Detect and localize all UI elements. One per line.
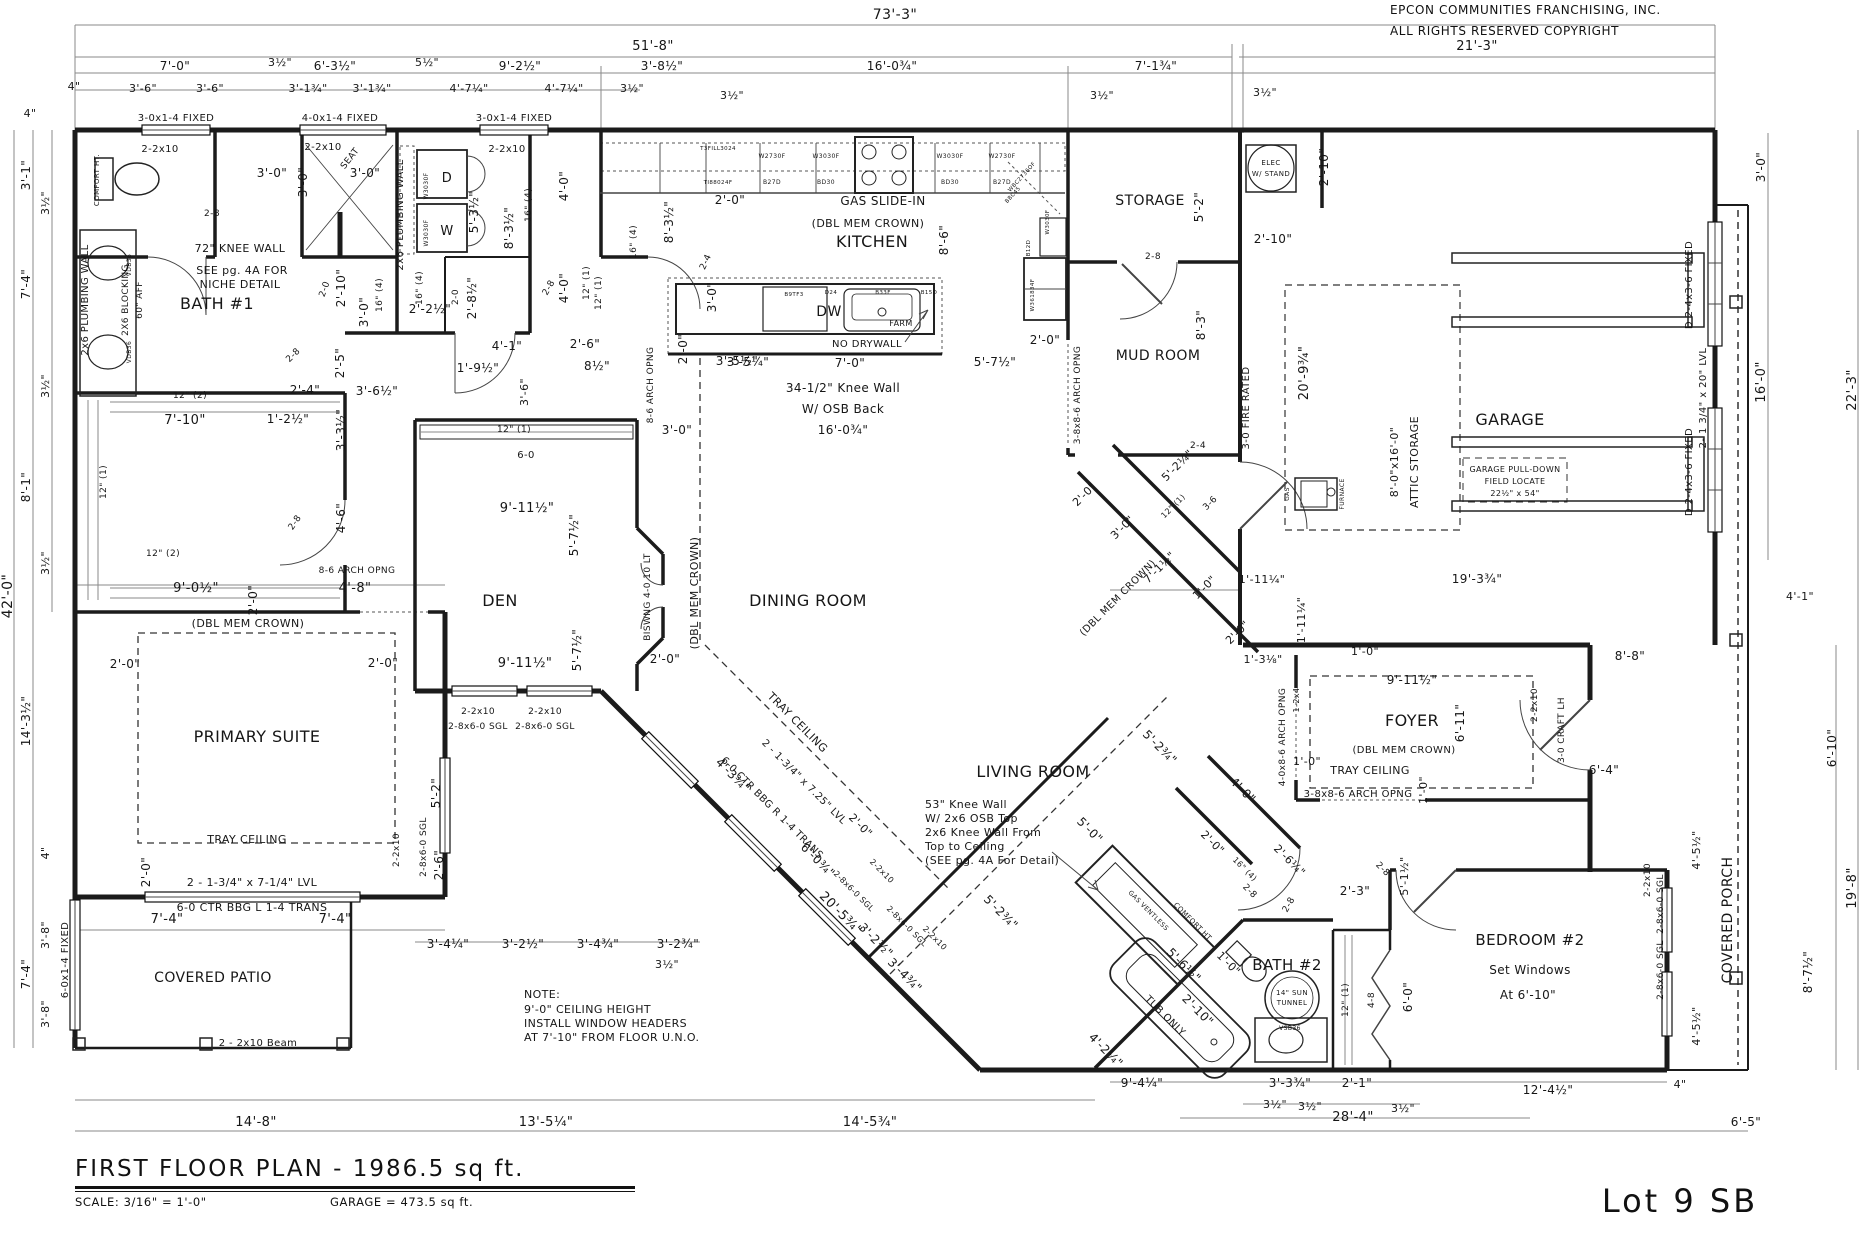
plan-label: 2-8: [1240, 882, 1258, 900]
plan-label: W3030F: [423, 219, 430, 246]
plan-label: 6-0: [517, 450, 535, 461]
sun-tunnel-icon: [1265, 971, 1319, 1025]
plan-label: 3'-2½": [502, 937, 544, 951]
plan-label: 3½": [1391, 1102, 1415, 1115]
plan-label: BISWNG 4-0 10 LT: [643, 553, 653, 641]
plan-label: 2-8: [541, 279, 558, 298]
plan-label: 5'-7½": [567, 514, 581, 556]
plan-label: 2-8: [287, 513, 304, 532]
plan-label: 3'-4¾": [577, 937, 619, 951]
plan-label: 14" SUN: [1276, 989, 1308, 997]
plan-label: 8'-3½": [662, 201, 676, 243]
plan-label: VDB36: [126, 254, 133, 276]
room-label: PRIMARY SUITE: [194, 727, 321, 746]
room-label: STORAGE: [1115, 193, 1184, 209]
plan-label: D 2-4x3-6 FIXED: [1684, 428, 1695, 516]
room-label: MUD ROOM: [1116, 348, 1201, 364]
plan-label: 4'-0": [557, 171, 571, 201]
plan-label: 1-2x4: [1292, 688, 1301, 713]
plan-label: 3'-3¾": [1269, 1076, 1311, 1090]
plan-label: 2-4: [1190, 441, 1206, 451]
plan-label: 3½": [268, 56, 292, 69]
plan-label: 3-8x8-6 ARCH OPNG: [1304, 789, 1413, 800]
plan-label: 2'-1": [1342, 1076, 1372, 1090]
labels-layer: 73'-3"51'-8"21'-3"7'-0"3½"6'-3½"5½"9'-2½…: [0, 7, 1860, 1130]
plan-label: 5'-1½": [1398, 856, 1411, 895]
plan-label: D 2-4x3-6 FIXED: [1684, 241, 1695, 329]
plan-label: 4": [39, 847, 52, 860]
plan-label: 2x6 PLUMBING WALL: [80, 244, 91, 355]
plan-label: 4-0x8-6 ARCH OPNG: [1278, 688, 1288, 786]
plan-label: TRAY CEILING: [206, 833, 287, 846]
plan-label: 53" Knee Wall: [925, 798, 1007, 811]
plan-label: 6'-10": [1825, 729, 1839, 767]
plan-label: 4": [1674, 1078, 1687, 1091]
plan-label: COMFORT HT.: [93, 154, 101, 206]
plan-label: 7'-0": [835, 356, 865, 370]
plan-label: W/ OSB Back: [802, 402, 884, 416]
plan-label: 9'-0" CEILING HEIGHT: [524, 1003, 651, 1016]
toilet-bowl: [115, 163, 159, 195]
plan-label: 8'-8": [1615, 649, 1645, 663]
plan-label: 3'-6": [518, 378, 531, 406]
plan-label: 7'-4": [19, 269, 33, 299]
plan-label: VSB36: [1279, 1025, 1301, 1032]
floor-plan-drawing: 73'-3"51'-8"21'-3"7'-0"3½"6'-3½"5½"9'-2½…: [0, 0, 1874, 1242]
plan-label: W2730F: [758, 153, 785, 160]
plan-label: 8'-6": [937, 225, 951, 255]
plan-label: 4'-0": [557, 273, 571, 303]
plan-label: 4'-5½": [1690, 830, 1703, 869]
plan-label: 2-8x6-0 SGL: [885, 904, 929, 948]
plan-label: 2-2x10: [141, 144, 178, 155]
copyright-line2: ALL RIGHTS RESERVED COPYRIGHT: [1390, 21, 1661, 42]
plan-label: 4'-1": [1786, 590, 1814, 603]
plan-label: 34-1/2" Knee Wall: [786, 381, 900, 395]
plan-label: 9'-4¼": [1121, 1076, 1163, 1090]
plan-label: B33F: [875, 290, 891, 296]
room-label: BATH #2: [1252, 956, 1322, 974]
plan-label: 3'-4¼": [427, 937, 469, 951]
plan-label: COMFORT HT: [1172, 901, 1214, 943]
plan-label: FIELD LOCATE: [1485, 477, 1546, 486]
copyright-line1: EPCON COMMUNITIES FRANCHISING, INC.: [1390, 0, 1661, 21]
plan-label: 20'-9¾": [1297, 346, 1312, 400]
plan-label: TI88024F: [703, 180, 733, 186]
plan-label: 16'-0": [1754, 361, 1769, 402]
plan-label: AT 7'-10" FROM FLOOR U.N.O.: [524, 1031, 699, 1044]
plan-label: D: [442, 171, 452, 186]
plan-label: NO DRYWALL: [832, 339, 902, 350]
plan-label: 2-2x10: [488, 144, 525, 155]
plan-label: 3'-8½": [641, 59, 683, 73]
plan-label: INSTALL WINDOW HEADERS: [524, 1017, 687, 1030]
plan-label: 3'-4¾": [885, 955, 925, 995]
plan-label: NOTE:: [524, 988, 560, 1001]
plan-label: 1'-3⅛": [1243, 653, 1282, 666]
plan-label: 9'-11½": [498, 656, 552, 671]
plan-label: 14'-3½": [19, 696, 33, 746]
plan-label: 2'-6": [570, 337, 600, 351]
plan-label: 3-6: [1201, 494, 1219, 512]
room-label: BEDROOM #2: [1475, 931, 1584, 949]
plan-label: 2-8x6-0 SGL: [515, 722, 575, 732]
plan-label: 16" (4): [629, 225, 639, 259]
plan-label: 3½": [1263, 1098, 1287, 1111]
plan-label: T3FILL3024: [699, 146, 736, 152]
plan-label: 7'-1¾": [1135, 59, 1177, 73]
plan-label: 9'-11½": [1387, 673, 1437, 687]
plan-label: 3½": [39, 551, 52, 575]
plan-label: FURNACE: [1339, 478, 1346, 509]
plan-label: 2'-0": [139, 857, 153, 887]
plan-label: 2-8: [1145, 252, 1161, 262]
plan-label: 6-0x1-4 FIXED: [60, 922, 71, 999]
plan-label: W2730F: [988, 153, 1015, 160]
plan-label: 3½": [39, 191, 52, 215]
plan-label: 8'-7½": [1801, 951, 1815, 993]
plan-label: 2-8x6-0 SGL: [1656, 940, 1666, 1000]
plan-label: 12" (1): [497, 425, 531, 435]
plan-label: W/ 2x6 OSB Top: [925, 812, 1018, 825]
plan-label: 2'-10": [1254, 232, 1292, 246]
plan-label: 2-2x10: [304, 142, 341, 153]
plan-label: 3½": [655, 958, 679, 971]
plan-label: 1'-0": [1417, 776, 1430, 804]
plan-label: 2-2x10: [868, 857, 896, 885]
plan-label: 42'-0": [0, 574, 16, 618]
plan-label: 7'-4": [151, 912, 184, 927]
plan-label: 2-2x10: [461, 707, 495, 717]
plan-label: 2'-0": [650, 652, 680, 666]
plan-title: FIRST FLOOR PLAN - 1986.5 sq ft.: [75, 1156, 635, 1182]
plan-label: 2-8x6-0 SGL: [448, 722, 508, 732]
plan-label: 4'-2¼": [1086, 1030, 1126, 1070]
sink-icon: [88, 335, 128, 369]
plan-label: B15D: [921, 290, 938, 296]
plan-label: 12" (1): [1341, 983, 1351, 1017]
room-label: FOYER: [1385, 711, 1439, 730]
plan-label: (DBL MEM CROWN): [192, 617, 305, 630]
title-rule-2: [75, 1191, 635, 1192]
plan-label: 3'-6½": [356, 384, 398, 398]
room-label: DINING ROOM: [749, 591, 867, 610]
plan-label: W3030F: [936, 153, 963, 160]
plan-label: 8½": [584, 359, 610, 373]
plan-label: 14'-5¾": [843, 1115, 897, 1130]
plan-label: 4'-7¼": [544, 82, 583, 95]
plan-label: 4": [68, 80, 81, 93]
plan-label: (DBL MEM CROWN): [688, 537, 701, 650]
plan-label: 2'-3": [1340, 884, 1370, 898]
plan-label: 2 - 2x10 Beam: [219, 1038, 298, 1049]
plan-label: 3'-1": [19, 160, 33, 190]
lot-number: Lot 9 SB: [1500, 1182, 1860, 1220]
plan-label: 22½" x 54": [1490, 489, 1539, 498]
plan-label: 1'-0": [1214, 949, 1243, 978]
plan-label: W: [440, 224, 453, 239]
plan-label: 3½": [1090, 89, 1114, 102]
plan-label: 2'-0": [1070, 480, 1099, 509]
plan-label: 19'-3¾": [1452, 572, 1502, 586]
plan-label: 2 - 1-3/4" x 7-1/4" LVL: [187, 876, 318, 889]
plan-label: 3-8x8-6 ARCH OPNG: [1073, 346, 1083, 444]
plan-label: 1'-0": [1351, 645, 1379, 658]
plan-label: 12" (1): [594, 276, 604, 310]
plan-label: 7'-4": [19, 959, 33, 989]
plan-label: B9TF3: [784, 292, 803, 298]
room-label: BATH #1: [180, 294, 254, 313]
tray-ceiling-dashes: [138, 143, 1567, 974]
plan-label: 2'-0": [368, 656, 398, 670]
plan-label: 8'-3": [1194, 310, 1208, 340]
plan-label: FARM: [889, 319, 912, 328]
plan-label: DW: [816, 304, 841, 320]
plan-label: 2'-0": [846, 811, 875, 840]
plan-label: 3½": [720, 89, 744, 102]
plan-label: 6'-11": [1453, 704, 1467, 742]
plan-label: 1'-0": [1293, 755, 1321, 768]
plan-label: BD30: [941, 179, 959, 186]
plan-label: 3'-8": [39, 921, 52, 949]
plan-label: 3½": [1298, 1100, 1322, 1113]
range-icon: [855, 137, 913, 193]
plan-label: 7'-0": [160, 59, 190, 73]
plan-label: 3'-8": [39, 1000, 52, 1028]
plan-label: 2'-10": [1317, 148, 1331, 186]
plan-label: 8'-3½": [502, 207, 516, 249]
room-label: GARAGE: [1475, 410, 1544, 429]
plan-label: 5'-2¼": [1159, 447, 1196, 484]
plan-label: B27D: [763, 179, 781, 186]
plan-label: 5'-3½": [467, 191, 481, 233]
plan-label: 3'-0": [350, 166, 380, 180]
plan-label: 19'-8": [1845, 867, 1860, 908]
plan-label: 4'-6": [334, 503, 348, 533]
plan-label: 6'-0": [1401, 982, 1415, 1012]
plan-label: 12" (2): [173, 391, 207, 401]
plan-label: 1'-9½": [457, 361, 499, 375]
room-label: COVERED PATIO: [154, 970, 272, 986]
plan-label: 2-8x6-0 SGL: [1656, 874, 1666, 934]
plan-label: 9'-0½": [173, 581, 219, 596]
plan-label: W3030F: [423, 172, 430, 199]
plan-label: WBC2736OF: [1007, 161, 1037, 193]
plan-label: 3½": [620, 82, 644, 95]
plan-label: W3030F: [812, 153, 839, 160]
plan-label: GAS: [1284, 487, 1291, 501]
plan-label: 2'-5": [333, 348, 347, 378]
plan-label: 3'-0": [257, 166, 287, 180]
fireplace-icon: [1076, 846, 1215, 985]
plan-label: 8'-1": [19, 472, 33, 502]
plan-label: GARAGE PULL-DOWN: [1469, 465, 1560, 474]
plan-label: 2-8: [1281, 896, 1298, 915]
plan-label: 5'-7½": [974, 355, 1016, 369]
room-label: DEN: [482, 591, 518, 610]
plan-label: 3'-0": [296, 167, 310, 197]
plan-label: 5½": [415, 56, 439, 69]
plan-label: B27D: [993, 179, 1011, 186]
plan-label: 16" (4): [524, 188, 534, 222]
plan-label: 3'-6": [196, 82, 224, 95]
plan-label: 2'-10": [334, 269, 348, 307]
plan-label: 8-6 ARCH OPNG: [319, 566, 396, 576]
plan-label: 5'-0": [1074, 814, 1105, 845]
plan-label: 3'-1¾": [288, 82, 327, 95]
plan-label: 4'-7¼": [449, 82, 488, 95]
plan-label: ATTIC STORAGE: [1408, 416, 1421, 508]
plan-label: 6-0 CTR BBG L 1-4 TRANS: [177, 901, 328, 914]
plan-label: 9'-11½": [500, 501, 554, 516]
plan-label: 3-0x1-4 FIXED: [138, 113, 215, 124]
plan-label: 1'-11¼": [1239, 573, 1286, 586]
plan-label: 2'-0": [1030, 333, 1060, 347]
plan-label: 2-8: [284, 346, 302, 364]
plan-label: 3'-2¾": [657, 937, 699, 951]
plan-label: 2-2x10: [392, 833, 402, 867]
plan-label: VDB36: [126, 341, 133, 363]
plan-label: 3½": [1253, 86, 1277, 99]
copyright-block: EPCON COMMUNITIES FRANCHISING, INC. ALL …: [1390, 0, 1661, 42]
plan-label: 2-8: [204, 209, 220, 219]
plan-label: 3'-0": [1754, 152, 1768, 182]
title-block: FIRST FLOOR PLAN - 1986.5 sq ft. SCALE: …: [75, 1156, 635, 1209]
plan-label: BD30: [817, 179, 835, 186]
plan-label: 2-2x10: [1643, 863, 1653, 897]
plan-label: B12D: [1026, 240, 1032, 257]
room-label: LIVING ROOM: [976, 762, 1089, 781]
plan-label: 5'-2": [429, 778, 443, 808]
plan-label: 2'-0": [715, 193, 745, 207]
plan-label: SEE pg. 4A FOR: [196, 264, 288, 277]
plan-label: (SEE pg. 4A For Detail): [925, 854, 1059, 867]
plan-label: 5'-7½": [570, 629, 584, 671]
plan-label: 7'-10": [164, 413, 205, 428]
plan-label: 1'-2½": [267, 412, 309, 426]
plan-label: 72" KNEE WALL: [195, 242, 286, 255]
plan-label: 7'-4": [319, 912, 352, 927]
plan-label: 2'-0": [110, 657, 140, 671]
plan-label: 3'-0": [705, 282, 719, 312]
plan-label: Set Windows: [1489, 963, 1571, 977]
plan-label: 60" AFF: [135, 281, 145, 319]
plan-label: 3-0 FIRE RATED: [1241, 367, 1252, 450]
room-label: COVERED PORCH: [1720, 857, 1736, 984]
plan-label: 12" (2): [146, 549, 180, 559]
plan-label: 2-0: [451, 289, 461, 305]
plan-label: 3½": [39, 374, 52, 398]
plan-label: 12" (1): [99, 465, 109, 499]
plan-label: 8'-0"x16'-0": [1388, 427, 1401, 497]
plan-label: 73'-3": [873, 7, 917, 23]
plan-label: 4": [24, 107, 37, 120]
title-rule: [75, 1186, 635, 1189]
plan-label: 16'-0¾": [818, 423, 868, 437]
plan-label: 3-0 CRAFT LH: [1557, 697, 1567, 763]
plan-label: NICHE DETAIL: [200, 278, 281, 291]
plan-label: 16'-0¾": [867, 59, 917, 73]
plan-label: 16" (4): [375, 278, 385, 312]
plan-label: 3'-0": [357, 297, 371, 327]
plan-label: 2x6 Knee Wall From: [925, 826, 1041, 839]
plan-label: 3-0x1-4 FIXED: [476, 113, 553, 124]
plan-label: 4'-5½": [1690, 1006, 1703, 1045]
plan-label: 12'-4½": [1523, 1083, 1573, 1097]
plan-label: 4'-8": [339, 581, 372, 596]
plan-label: 2'-0": [246, 585, 260, 615]
plan-label: At 6'-10": [1500, 988, 1556, 1002]
plan-label: 51'-8": [632, 39, 673, 54]
plan-label: 3'-0": [662, 423, 692, 437]
plan-label: 5'-2¾": [1140, 727, 1180, 767]
plan-label: W3030F: [1045, 210, 1051, 235]
plan-label: D24: [825, 290, 838, 296]
plan-label: (DBL MEM CROWN): [1352, 745, 1455, 756]
plan-label: 2-0: [318, 280, 333, 298]
plan-label: 3'-1¾": [352, 82, 391, 95]
plan-label: 2'-6": [432, 850, 446, 880]
plan-label: (DBL MEM CROWN): [812, 217, 925, 230]
plan-label: W361834F: [1030, 279, 1036, 312]
plan-label: 5'-2": [1192, 192, 1206, 222]
plan-label: 2-8x6-0 SGL: [419, 817, 429, 877]
plan-label: 2x6 PLUMBING WALL: [395, 159, 406, 270]
plan-label: TUNNEL: [1276, 999, 1308, 1007]
plan-label: 5'-2¾": [981, 892, 1021, 932]
plan-label: 3'-6": [129, 82, 157, 95]
plan-label: 12" (1): [582, 266, 592, 300]
plan-label: 6'-4": [1589, 763, 1619, 777]
plan-label: 14'-8": [235, 1115, 276, 1130]
garage-area: GARAGE = 473.5 sq ft.: [330, 1195, 473, 1209]
plan-label: 2-2x10: [528, 707, 562, 717]
plan-label: 1'-11¼": [1295, 597, 1308, 644]
plan-label: (DBL MEM CROWN): [1078, 558, 1159, 639]
plan-label: 28'-4": [1332, 1110, 1373, 1125]
plan-label: 9'-2½": [499, 59, 541, 73]
plan-label: 4'-1": [492, 339, 522, 353]
plan-label: 22'-3": [1845, 369, 1860, 410]
plan-label: 16" (4): [1231, 855, 1259, 883]
plan-label: 6'-5": [1731, 1115, 1761, 1129]
plan-label: 6'-3½": [314, 59, 356, 73]
plan-label: 2- 1 3/4" x 20" LVL: [1698, 348, 1709, 449]
plan-label: 2-2x10: [1530, 688, 1540, 722]
plan-scale: SCALE: 3/16" = 1'-0": [75, 1195, 330, 1209]
plan-label: Top to Ceiling: [924, 840, 1005, 853]
plan-label: 13'-5¼": [519, 1115, 573, 1130]
plan-label: 3'-3½": [334, 409, 348, 451]
plan-label: 16" (4): [415, 271, 425, 305]
plan-label: TRAY CEILING: [1329, 764, 1410, 777]
elec-stand: [1246, 145, 1296, 192]
plan-label: 2-4: [698, 253, 714, 272]
plan-label: 2'-8½": [465, 277, 479, 319]
plan-label: 3'-5½": [716, 354, 758, 368]
plan-label: 2'-6¼": [1271, 842, 1308, 879]
faucet-icon: [878, 308, 886, 316]
plan-label: 2'-4": [290, 383, 320, 397]
plan-label: GAS SLIDE-IN: [840, 194, 925, 208]
room-label: KITCHEN: [836, 232, 908, 251]
plan-label: 2'-0": [676, 334, 690, 364]
plan-label: 8-6 ARCH OPNG: [646, 347, 656, 424]
plan-label: ELEC: [1261, 159, 1280, 167]
dimension-lines: [14, 25, 1858, 1131]
plan-label: 4-0x1-4 FIXED: [302, 113, 379, 124]
plan-label: 4-8: [1367, 992, 1377, 1008]
